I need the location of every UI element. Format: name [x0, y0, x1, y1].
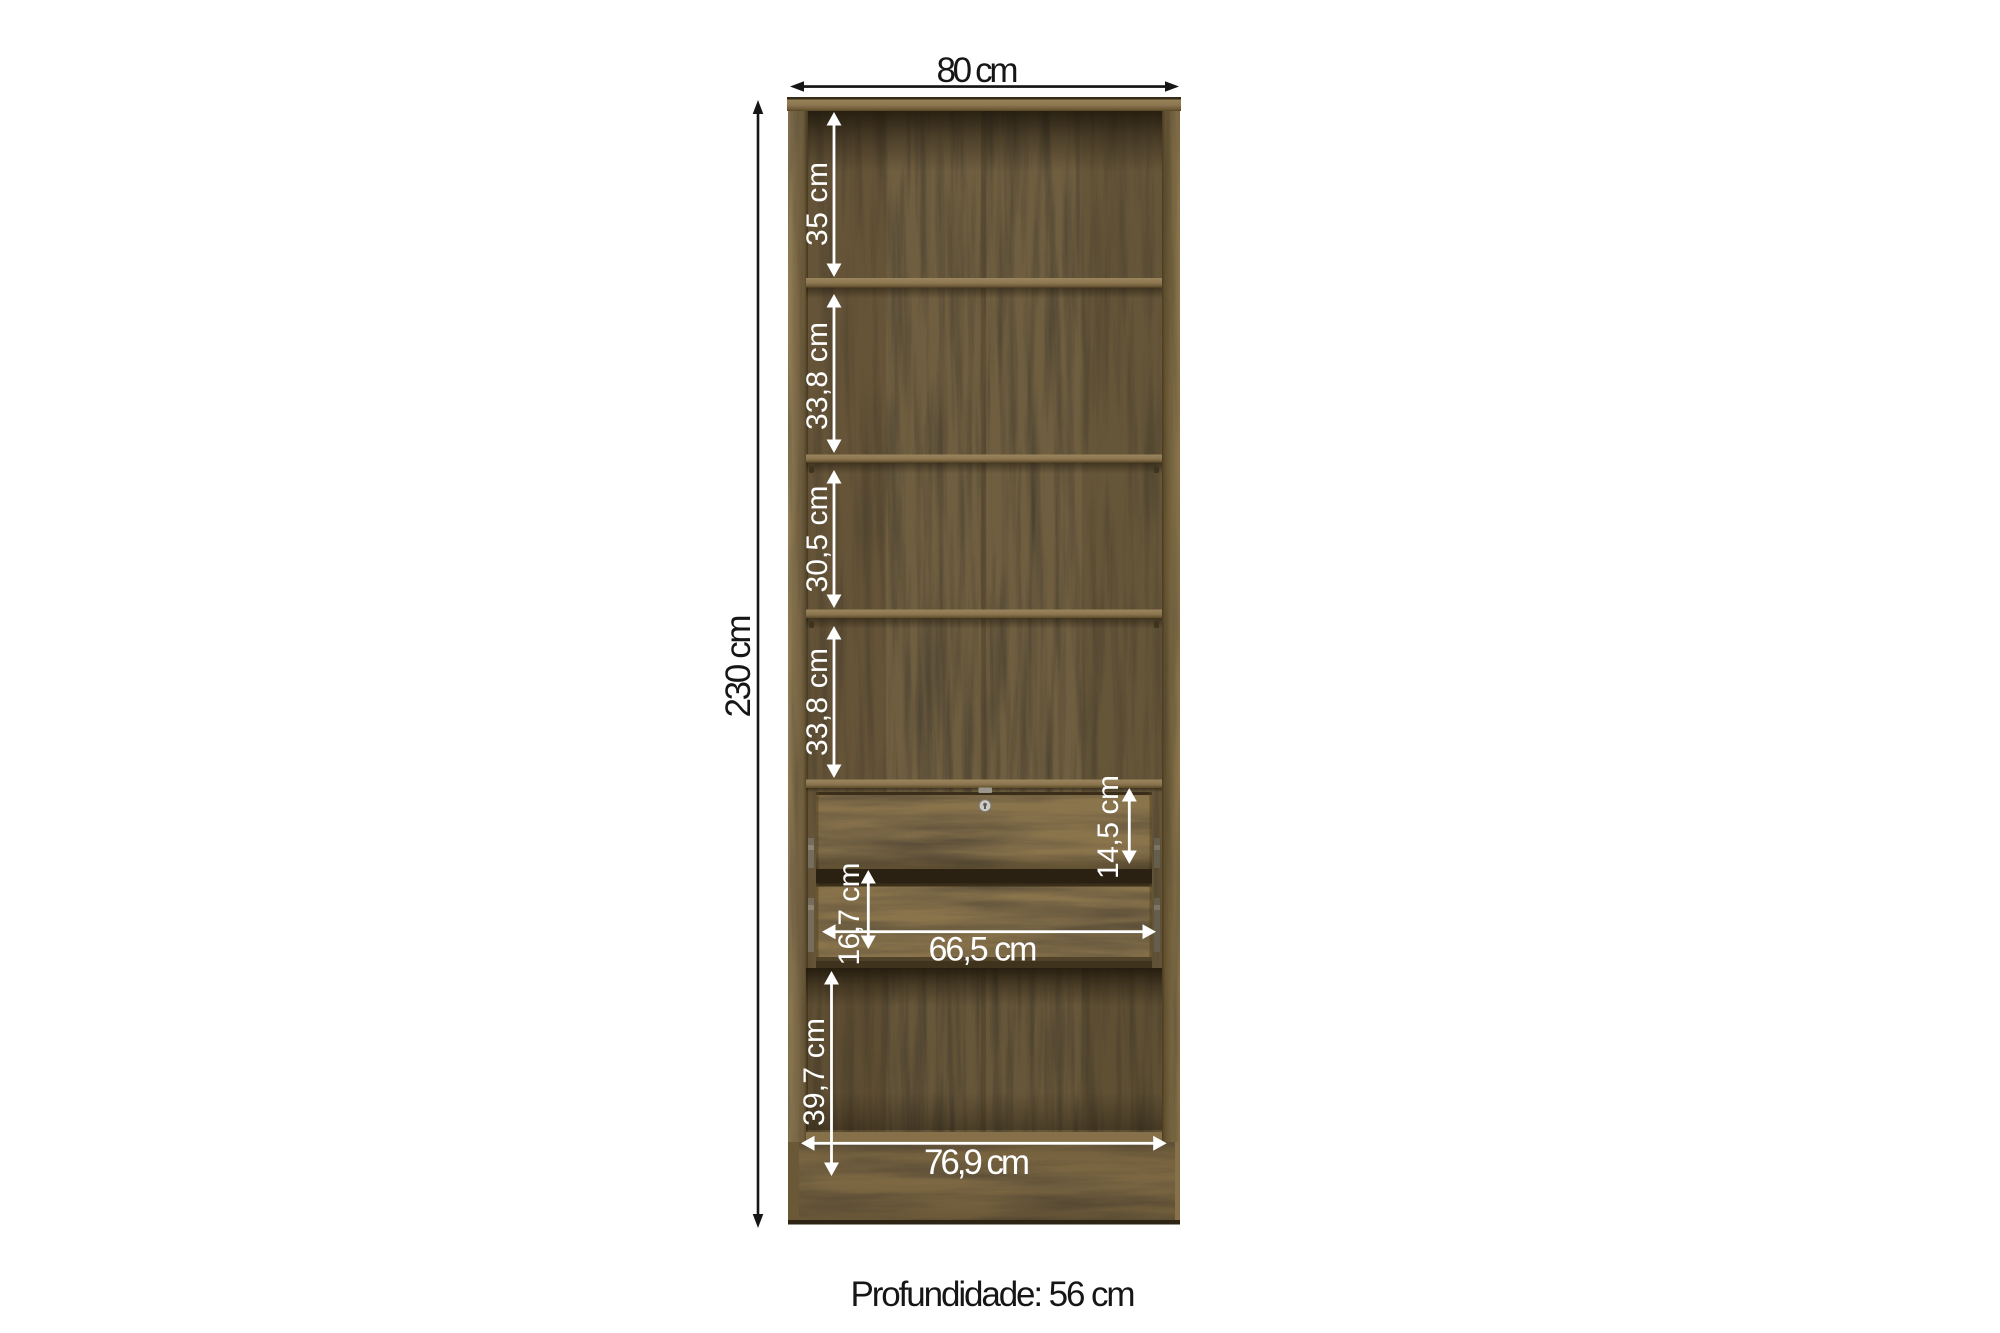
svg-text:33,8 cm: 33,8 cm — [801, 322, 834, 430]
svg-text:33,8 cm: 33,8 cm — [801, 648, 834, 756]
svg-text:39,7 cm: 39,7 cm — [798, 1018, 831, 1126]
svg-text:80 cm: 80 cm — [937, 51, 1019, 90]
svg-text:230 cm: 230 cm — [719, 615, 758, 718]
svg-text:76,9 cm: 76,9 cm — [924, 1143, 1030, 1182]
svg-text:16,7 cm: 16,7 cm — [833, 863, 866, 966]
svg-text:30,5 cm: 30,5 cm — [801, 486, 834, 593]
svg-text:35 cm: 35 cm — [801, 162, 834, 246]
svg-text:14,5 cm: 14,5 cm — [1092, 775, 1125, 879]
svg-text:Profundidade: 56 cm: Profundidade: 56 cm — [851, 1275, 1136, 1314]
svg-text:66,5 cm: 66,5 cm — [929, 931, 1038, 969]
